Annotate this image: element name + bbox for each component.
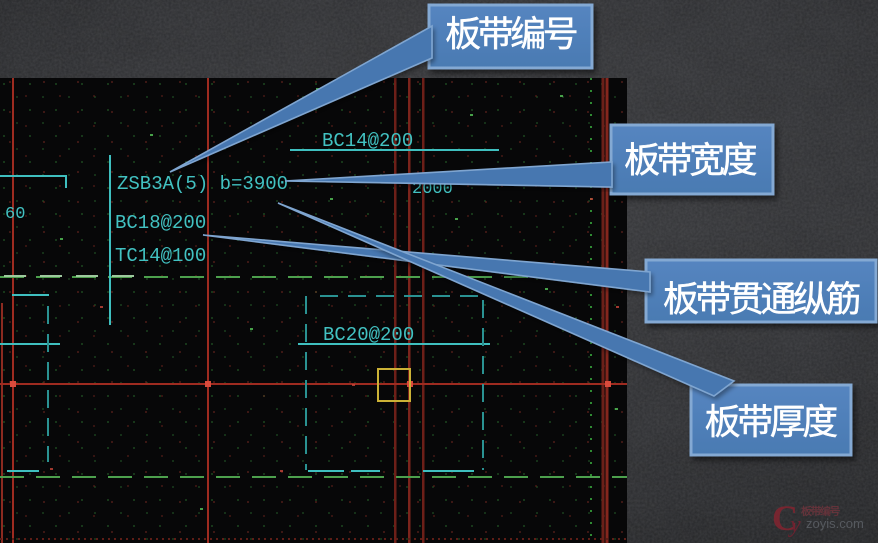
svg-text:y: y [788,512,801,538]
svg-text:zoyis.com: zoyis.com [806,516,864,531]
